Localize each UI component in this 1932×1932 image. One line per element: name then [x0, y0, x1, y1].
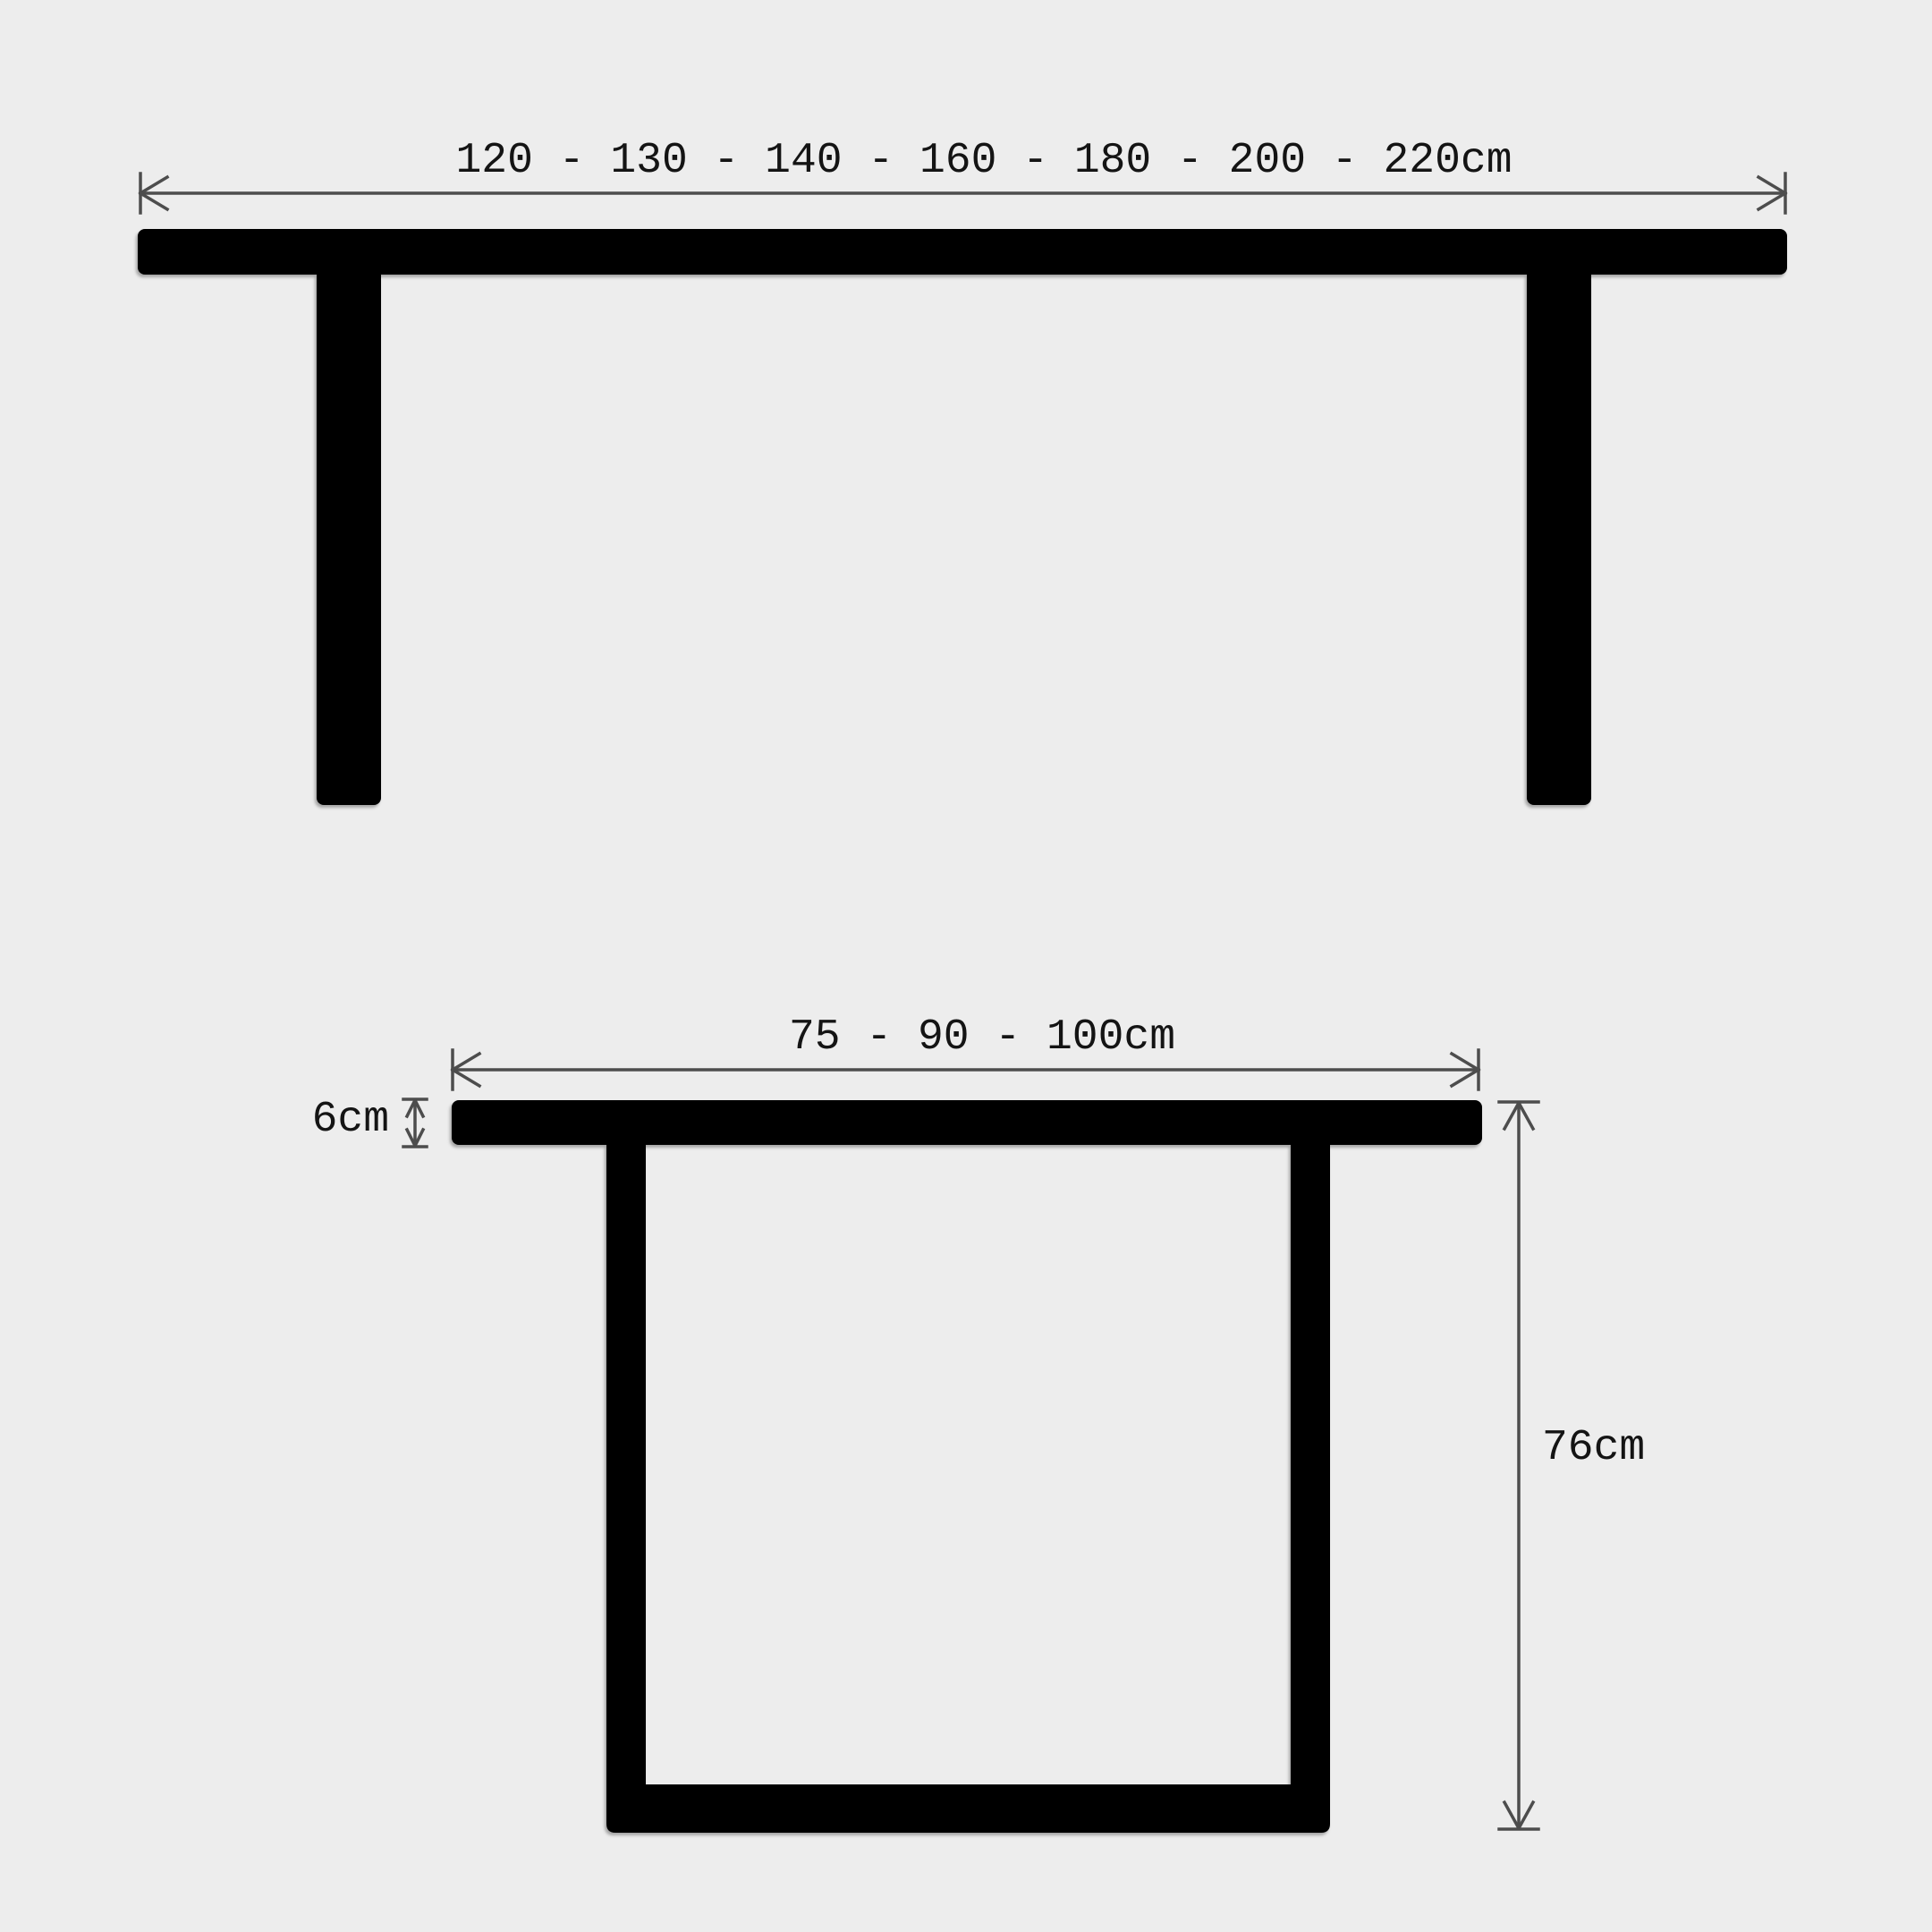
side-tabletop: [452, 1100, 1482, 1145]
side-leg-frame: [606, 1143, 1330, 1833]
arrow-head-down-left: [1504, 1802, 1519, 1828]
side-height-label: 76cm: [1542, 1424, 1645, 1472]
side-top-thickness-label: 6cm: [312, 1096, 389, 1144]
front-view: 120 - 130 - 140 - 160 - 180 - 200 - 220c…: [138, 137, 1787, 805]
arrow-head-left-lower: [453, 1070, 479, 1086]
table-dimension-diagram: 120 - 130 - 140 - 160 - 180 - 200 - 220c…: [0, 0, 1932, 1932]
front-right-leg: [1527, 268, 1591, 805]
arrow-head-up-left: [1504, 1103, 1519, 1129]
arrow-head-left-upper: [453, 1054, 479, 1070]
side-table-silhouette: [452, 1100, 1482, 1833]
arrow-head-left-upper: [140, 177, 167, 193]
front-left-leg: [317, 268, 381, 805]
arrow-head-right-lower: [1758, 193, 1785, 209]
arrow-head-down-right: [1519, 1802, 1533, 1828]
arrow-head-left-lower: [140, 193, 167, 209]
arrow-head-right-upper: [1758, 177, 1785, 193]
arrow-head-up-right: [1519, 1103, 1533, 1129]
arrow-head-right-upper: [1452, 1054, 1479, 1070]
side-depth-label: 75 - 90 - 100cm: [789, 1013, 1175, 1062]
top-thickness-dimension-arrow: [403, 1099, 427, 1147]
front-tabletop: [138, 229, 1787, 275]
front-width-label: 120 - 130 - 140 - 160 - 180 - 200 - 220c…: [456, 137, 1513, 185]
side-view: 75 - 90 - 100cm 6cm: [312, 1013, 1646, 1833]
diagram-canvas: 120 - 130 - 140 - 160 - 180 - 200 - 220c…: [0, 0, 1932, 1932]
arrow-head-right-lower: [1452, 1070, 1479, 1086]
height-dimension-arrow: [1499, 1102, 1538, 1829]
front-table-silhouette: [138, 229, 1787, 805]
